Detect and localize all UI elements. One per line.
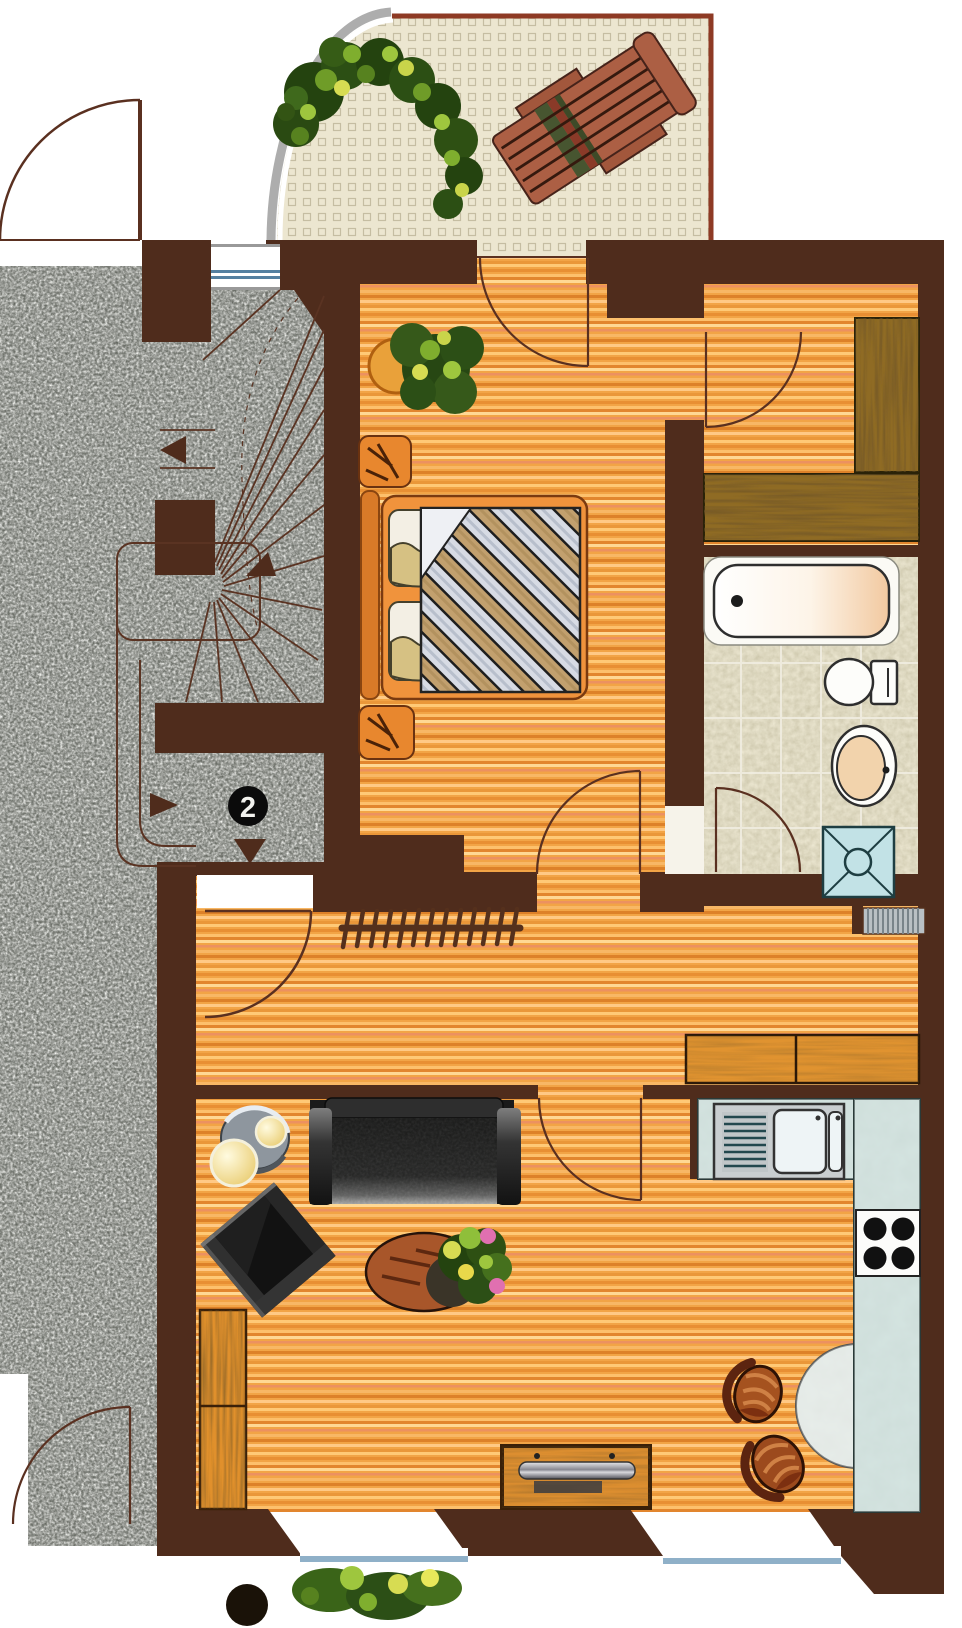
- svg-text:2: 2: [240, 792, 256, 824]
